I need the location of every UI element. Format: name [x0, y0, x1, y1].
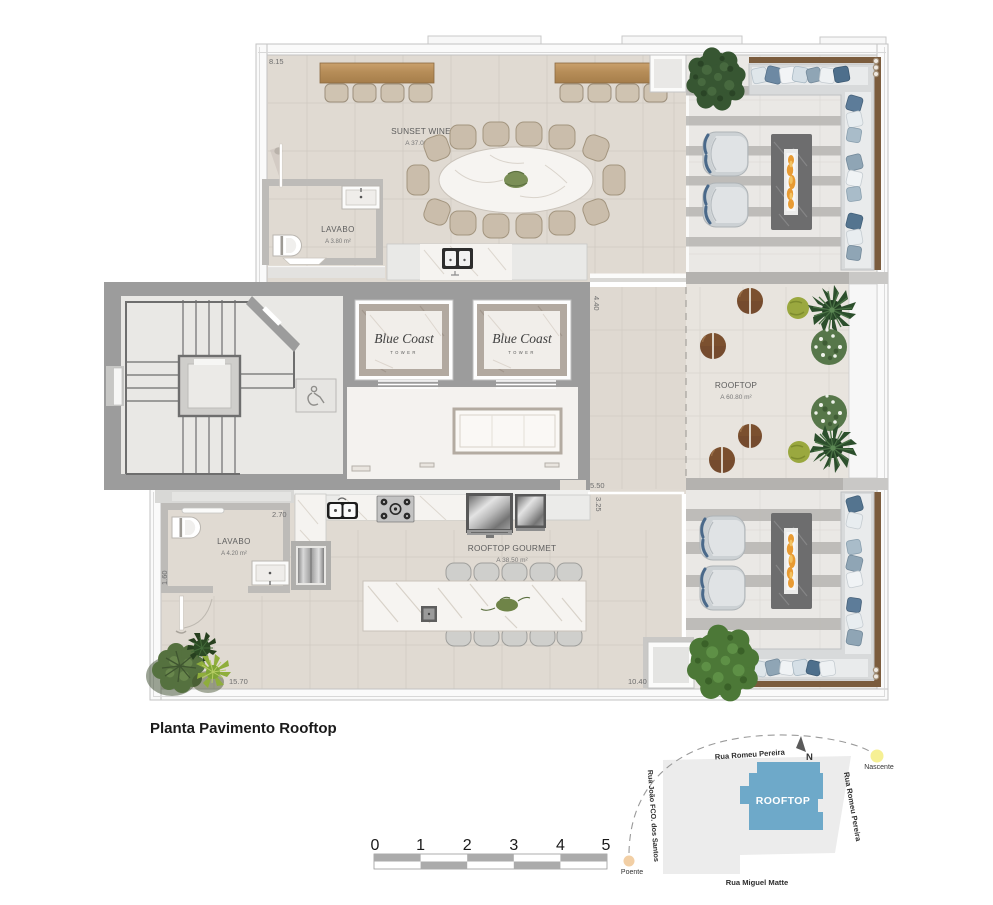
svg-text:Rua Miguel Matte: Rua Miguel Matte — [726, 878, 788, 887]
svg-text:4: 4 — [556, 837, 565, 854]
svg-text:ROOFTOP: ROOFTOP — [756, 795, 811, 807]
svg-text:2: 2 — [463, 837, 472, 854]
svg-text:1: 1 — [416, 837, 425, 854]
svg-text:3.25: 3.25 — [594, 497, 603, 512]
svg-text:15.70: 15.70 — [229, 677, 248, 686]
svg-text:A 4.20 m²: A 4.20 m² — [221, 551, 247, 557]
svg-text:10.40: 10.40 — [628, 677, 647, 686]
svg-text:Poente: Poente — [621, 869, 643, 876]
svg-text:ROOFTOP GOURMET: ROOFTOP GOURMET — [468, 543, 556, 553]
svg-text:LAVABO: LAVABO — [321, 225, 355, 234]
svg-text:4.40: 4.40 — [592, 296, 601, 311]
svg-text:LAVABO: LAVABO — [217, 537, 251, 546]
svg-text:1.60: 1.60 — [160, 570, 169, 585]
svg-text:2.70: 2.70 — [272, 510, 287, 519]
svg-text:N: N — [806, 752, 813, 763]
svg-text:5.50: 5.50 — [590, 481, 605, 490]
svg-text:8.15: 8.15 — [269, 57, 284, 66]
svg-text:Blue Coast: Blue Coast — [374, 331, 435, 346]
svg-text:Nascente: Nascente — [864, 764, 894, 771]
svg-text:ROOFTOP: ROOFTOP — [715, 380, 758, 390]
svg-text:TOWER: TOWER — [508, 350, 536, 355]
svg-text:TOWER: TOWER — [390, 350, 418, 355]
svg-text:5: 5 — [602, 837, 611, 854]
svg-text:A 3.80 m²: A 3.80 m² — [325, 239, 351, 245]
svg-text:0: 0 — [371, 837, 380, 854]
svg-text:A 60.80 m²: A 60.80 m² — [720, 394, 752, 401]
svg-text:SUNSET WINE: SUNSET WINE — [391, 126, 451, 136]
svg-text:Blue Coast: Blue Coast — [492, 331, 553, 346]
svg-text:3: 3 — [509, 837, 518, 854]
svg-text:Planta Pavimento Rooftop: Planta Pavimento Rooftop — [150, 720, 337, 737]
